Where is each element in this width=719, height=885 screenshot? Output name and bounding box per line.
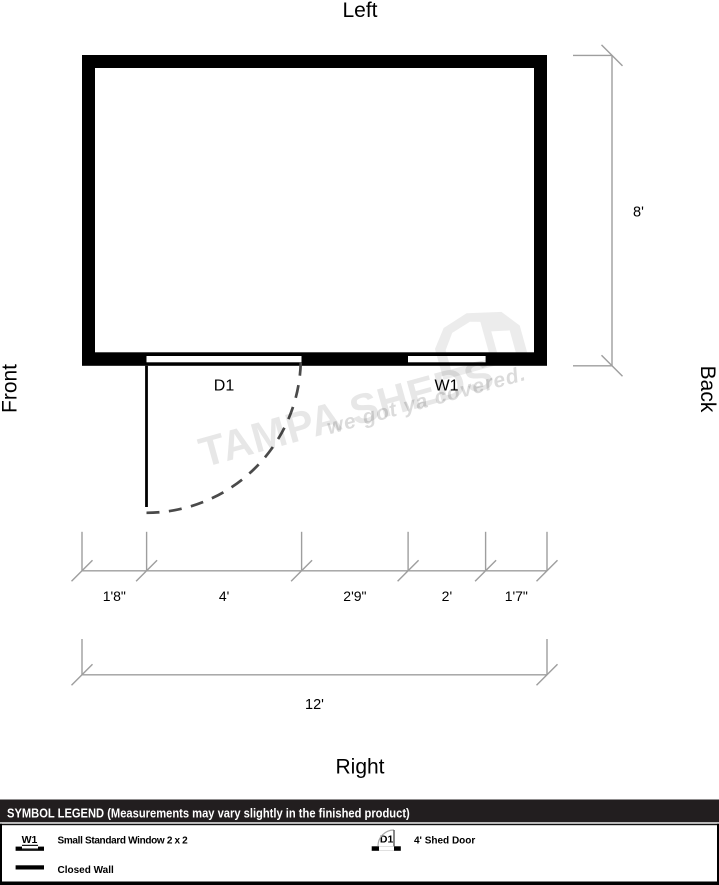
svg-text:Right: Right xyxy=(335,756,384,779)
svg-text:W1: W1 xyxy=(22,834,38,846)
svg-text:1'8": 1'8" xyxy=(103,588,126,604)
svg-text:SYMBOL LEGEND (Measurements ma: SYMBOL LEGEND (Measurements may vary sli… xyxy=(7,806,410,821)
svg-text:Closed Wall: Closed Wall xyxy=(58,865,115,876)
svg-text:Front: Front xyxy=(0,364,22,413)
svg-text:1'7": 1'7" xyxy=(505,588,528,604)
svg-text:D1: D1 xyxy=(214,378,235,395)
svg-text:12': 12' xyxy=(305,697,324,713)
svg-text:Back: Back xyxy=(696,366,719,413)
svg-text:8': 8' xyxy=(633,205,644,221)
svg-text:Small Standard Window 2 x 2: Small Standard Window 2 x 2 xyxy=(58,836,189,847)
svg-text:2': 2' xyxy=(442,588,452,604)
svg-text:4': 4' xyxy=(219,588,229,604)
svg-text:2'9": 2'9" xyxy=(343,588,366,604)
svg-text:4' Shed Door: 4' Shed Door xyxy=(414,836,475,847)
svg-text:Left: Left xyxy=(342,0,377,22)
